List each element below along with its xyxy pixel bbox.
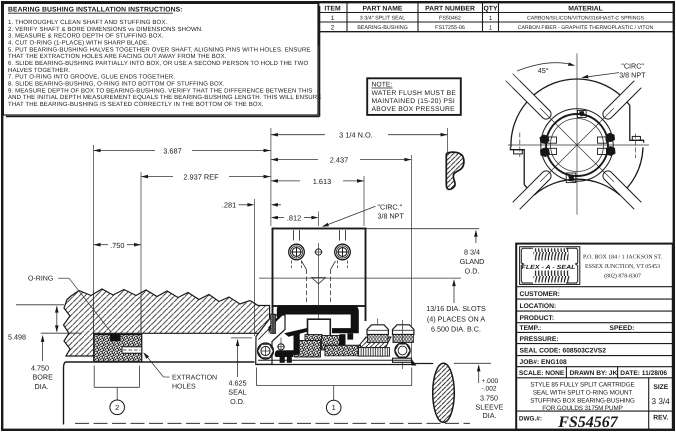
svg-text:THAT THE BEARING-BUSHING IS SE: THAT THE BEARING-BUSHING IS SEATED CORRE… [8,101,264,108]
svg-text:2: 2 [115,403,119,412]
svg-text:1: 1 [332,403,336,412]
svg-text:DATE: 11/28/06: DATE: 11/28/06 [620,370,667,377]
svg-text:ABOVE BOX PRESSURE: ABOVE BOX PRESSURE [372,106,456,113]
svg-text:3.750: 3.750 [480,394,498,403]
svg-text:"CIRC": "CIRC" [621,62,644,71]
svg-text:4. CUT O-RING (1-PLACE) WITH S: 4. CUT O-RING (1-PLACE) WITH SHARP BLADE… [8,40,149,47]
svg-text:REV.: REV. [653,415,668,422]
svg-text:DWG.#:: DWG.#: [519,415,542,422]
svg-text:AND THE INITIAL DEPTH MEASUREM: AND THE INITIAL DEPTH MEASUREMENT EQUALS… [8,94,321,101]
svg-text:STUFFING BOX BEARING-BUSHING: STUFFING BOX BEARING-BUSHING [530,397,635,404]
svg-text:3 3/4" SPLIT SEAL: 3 3/4" SPLIT SEAL [360,16,406,22]
svg-text:TEMP.:: TEMP.: [520,325,542,332]
svg-text:DIA.: DIA. [483,411,497,420]
svg-text:QTY: QTY [484,6,498,13]
svg-text:HALVES TOGETHER.: HALVES TOGETHER. [8,67,70,74]
svg-text:MATERIAL: MATERIAL [568,6,603,13]
svg-text:1: 1 [331,15,335,22]
svg-text:.750: .750 [110,241,124,250]
svg-text:2. VERIFY SHAFT & BORE DIMENSI: 2. VERIFY SHAFT & BORE DIMENSIONS vs DIM… [8,26,203,33]
svg-text:WATER FLUSH MUST BE: WATER FLUSH MUST BE [372,90,457,97]
svg-text:JOB#: ENG108: JOB#: ENG108 [520,359,567,366]
svg-text:CUSTOMER:: CUSTOMER: [520,291,560,298]
svg-text:(802) 878-8307: (802) 878-8307 [604,272,641,279]
svg-text:6.500 DIA. B.C.: 6.500 DIA. B.C. [431,324,481,333]
svg-text:ESSEX JUNCTION, VT 05453: ESSEX JUNCTION, VT 05453 [585,264,660,270]
svg-text:BORE: BORE [33,373,54,382]
svg-text:"CIRC.": "CIRC." [378,203,403,212]
svg-text:NOTE:: NOTE: [372,82,393,89]
svg-text:2.437: 2.437 [330,155,349,164]
svg-text:EXTRACTION: EXTRACTION [172,374,217,381]
svg-text:SCALE: NONE: SCALE: NONE [519,370,565,377]
svg-text:8. SLIDE BEARING-BUSHING, O-RI: 8. SLIDE BEARING-BUSHING, O-RING INTO BO… [8,81,225,88]
svg-text:7. PUT O-RING INTO GROOVE, GLU: 7. PUT O-RING INTO GROOVE, GLUE ENDS TOG… [8,74,175,81]
svg-text:3.687: 3.687 [163,146,182,155]
svg-text:1.613: 1.613 [313,177,332,186]
svg-text:8 3/4: 8 3/4 [464,248,480,257]
svg-text:FS50462: FS50462 [439,16,461,22]
svg-text:2: 2 [331,24,335,31]
svg-text:3/8 NPT: 3/8 NPT [378,211,405,220]
svg-text:-.002: -.002 [482,386,497,393]
svg-text:3 3/4: 3 3/4 [651,397,670,406]
svg-text:FOR GOULDS 3175M PUMP: FOR GOULDS 3175M PUMP [542,405,622,412]
svg-text:4.750: 4.750 [31,363,49,372]
svg-text:DRAWN BY: JK: DRAWN BY: JK [570,370,618,377]
svg-text:3/8 NPT: 3/8 NPT [619,70,646,79]
svg-text:FS17255-06: FS17255-06 [435,25,465,31]
svg-text:PART NUMBER: PART NUMBER [425,6,475,13]
svg-text:5. PUT BEARING-BUSHING HALVES: 5. PUT BEARING-BUSHING HALVES TOGETHER O… [8,46,311,53]
svg-text:BEARING-BUSHING: BEARING-BUSHING [357,25,408,31]
svg-text:3. MEASURE & RECORD DEPTH OF S: 3. MEASURE & RECORD DEPTH OF STUFFING BO… [8,33,164,40]
svg-text:6. SLIDE BEARING-BUSHING PARTI: 6. SLIDE BEARING-BUSHING PARTIALLY INTO … [8,60,308,67]
svg-text:2.937 REF: 2.937 REF [183,172,219,181]
svg-text:P.O. BOX 184 / 1 JACKSON ST.: P.O. BOX 184 / 1 JACKSON ST. [583,255,662,261]
svg-text:SPEED:: SPEED: [610,325,635,332]
svg-text:DIA.: DIA. [35,382,49,391]
svg-text:BEARING BUSHING INSTALLATION: BEARING BUSHING INSTALLATION INSTRUCTION… [8,6,183,13]
svg-text:LOCATION:: LOCATION: [520,303,557,310]
svg-text:PART NAME: PART NAME [363,6,403,13]
svg-text:CARBON/SILICON/VITON/316/HAST-: CARBON/SILICON/VITON/316/HAST-C SPRINGS [527,16,644,22]
svg-text:MAINTAINED (15-20) PSI: MAINTAINED (15-20) PSI [372,98,456,105]
svg-text:SIZE: SIZE [653,384,668,391]
svg-text:.281: .281 [222,200,236,209]
svg-text:STYLE 85 FULLY SPLIT CARTR: STYLE 85 FULLY SPLIT CARTRIDGE [530,381,634,388]
svg-text:O.D.: O.D. [230,397,245,406]
svg-text:THAT THE EXTRACTION HOLES ARE: THAT THE EXTRACTION HOLES ARE FACING OUT… [8,53,227,60]
svg-text:ITEM: ITEM [324,6,341,13]
svg-text:4.625: 4.625 [229,378,247,387]
svg-text:HOLES: HOLES [172,384,196,391]
svg-text:PRESSURE:: PRESSURE: [520,336,559,343]
svg-text:FS54567: FS54567 [557,414,619,431]
svg-text:O.D.: O.D. [465,267,480,276]
svg-text:+.000: +.000 [482,378,499,385]
svg-text:5.498: 5.498 [8,332,26,341]
svg-text:O-RING: O-RING [28,276,53,283]
svg-text:3 1/4 N.O.: 3 1/4 N.O. [339,131,373,140]
svg-text:GLAND: GLAND [460,257,485,266]
svg-text:13/16 DIA. SLOTS: 13/16 DIA. SLOTS [426,304,486,313]
svg-text:9. MEASURE DEPTH OF BOX TO BEA: 9. MEASURE DEPTH OF BOX TO BEARING-BUSHI… [8,87,312,94]
svg-text:SEAL WITH SPLIT O-RING MOU: SEAL WITH SPLIT O-RING MOUNT [533,389,633,396]
svg-text:SEAL CODE: 608503C2VS2: SEAL CODE: 608503C2VS2 [520,348,607,355]
svg-text:PRODUCT:: PRODUCT: [520,315,555,322]
svg-text:SEAL: SEAL [228,388,246,397]
svg-text:CARBON FIBER - GRAPHITE TH: CARBON FIBER - GRAPHITE THERMOPLASTIC / … [518,25,654,31]
svg-text:1. THOROUGHLY CLEAN SHAFT AND: 1. THOROUGHLY CLEAN SHAFT AND STUFFING B… [8,19,167,26]
svg-text:45°: 45° [538,66,549,75]
svg-text:.812: .812 [287,214,301,223]
svg-text:(4) PLACES ON A: (4) PLACES ON A [427,314,486,323]
svg-text:FLEX - A - SEAL: FLEX - A - SEAL [522,264,576,271]
